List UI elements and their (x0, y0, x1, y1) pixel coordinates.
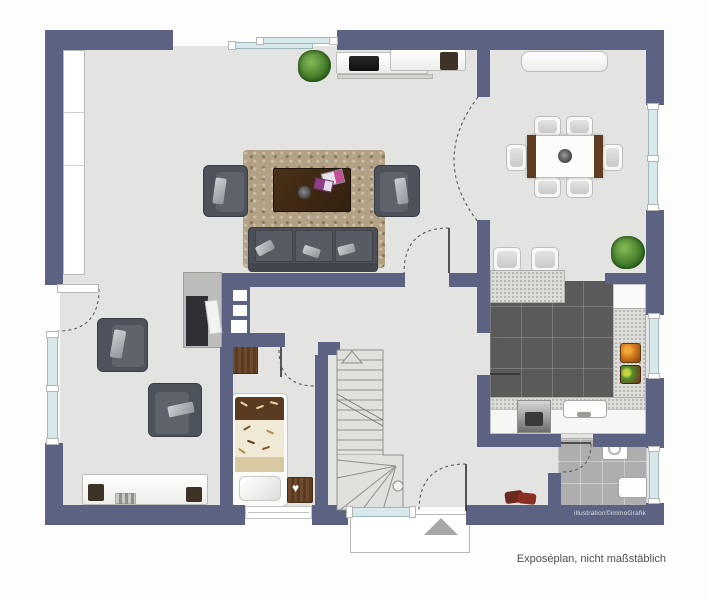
window-frame-cap (648, 373, 660, 379)
window-frame-cap (409, 506, 416, 518)
bedroom-door-arc (279, 350, 315, 386)
living-hall-door-arc (404, 228, 449, 273)
entrance-sidelight (348, 507, 415, 517)
bedroom-window-line (248, 512, 309, 513)
kitchen-right-window (649, 315, 659, 378)
window-frame-cap (648, 498, 660, 504)
plan-caption: Exposéplan, nicht maßstäblich (446, 553, 666, 565)
door-leaves (281, 228, 591, 511)
bath-door-arc (562, 444, 591, 472)
window-frame-cap (647, 155, 659, 162)
window-frame-cap (228, 41, 236, 50)
window-frame-cap (648, 446, 660, 452)
window-frame-cap (648, 313, 660, 319)
window-frame-cap (46, 438, 59, 445)
top-window-strip (258, 37, 336, 44)
window-frame-cap (46, 385, 59, 392)
entrance-door-arc (419, 464, 466, 511)
door-swing-arcs (58, 97, 591, 511)
kitchen-door-arc (491, 337, 520, 372)
window-frame-cap (46, 331, 59, 338)
staircase (337, 350, 403, 510)
window-frame-cap (647, 103, 659, 110)
floor-plan: ♥ (0, 0, 709, 600)
bath-right-window (649, 448, 659, 503)
terrace-door-leaf (57, 284, 99, 293)
window-frame-cap (647, 204, 659, 211)
watermark-text: illustration©immoGrafik (564, 510, 656, 517)
living-dining-door-arc (454, 97, 478, 222)
window-frame-cap (329, 37, 338, 45)
terrace-door-arc (58, 289, 99, 331)
window-frame-cap (256, 37, 264, 45)
window-frame-cap (346, 506, 353, 518)
newel-post (393, 481, 403, 491)
